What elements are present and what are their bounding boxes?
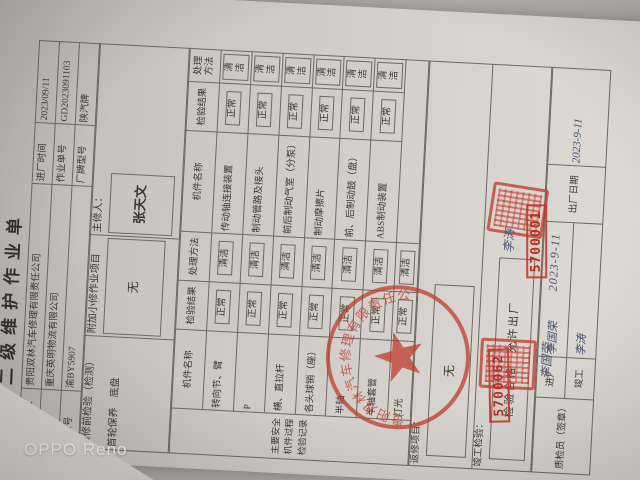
result-value: 正常	[299, 287, 332, 338]
pre-repair-cell: 维修前检验（检测） 首轮保养 底盘	[79, 335, 174, 453]
finish-signature: 李涛	[575, 334, 588, 357]
method-value: 清洁	[281, 53, 314, 88]
inspector-label: 质检员（签章）	[532, 397, 594, 475]
paper-sheet: 二级维护作业单 维修企业： 贵阳双林汽车修理有限责任公司 进厂时间 2023/0…	[0, 0, 640, 480]
col-header-result-left: 检验结果	[176, 280, 210, 331]
finish-signature-cell: 李涛	[567, 223, 603, 359]
part-name: 半轴套管	[356, 339, 391, 420]
result-value: 正常	[309, 88, 342, 139]
result-value: 正常	[279, 86, 312, 137]
camera-watermark: OPPO Reno	[24, 440, 128, 460]
handwritten-exit-date: 2023-9-11	[546, 233, 564, 292]
result-value: 正常	[371, 91, 404, 142]
method-value: 清洁	[394, 243, 420, 293]
additional-repairs-label: 附加小修作业项目	[87, 237, 104, 333]
part-name: P	[233, 332, 268, 413]
method-value: 清洁	[374, 58, 407, 93]
result-value: 正常	[207, 282, 240, 333]
maintenance-form: 二级维护作业单 维修企业： 贵阳双林汽车修理有限责任公司 进厂时间 2023/0…	[0, 38, 611, 475]
result-value: 正常	[217, 83, 250, 134]
col-header-result-right: 检验结果	[186, 81, 220, 132]
exit-date-value: 2023-9-11	[570, 118, 584, 164]
photo-of-maintenance-form: 二级维护作业单 维修企业： 贵阳双林汽车修理有限责任公司 进厂时间 2023/0…	[0, 0, 640, 480]
result-value: 正常	[361, 290, 394, 341]
method-value: 清洁	[240, 234, 273, 285]
method-value: 清洁	[250, 52, 283, 87]
col-header-method-left: 处理方法	[178, 231, 212, 282]
chief-repairer-cell: 主修人： 张天文	[90, 44, 189, 239]
method-value: 清洁	[332, 239, 365, 290]
exit-date-cell: 2023-9-11	[548, 67, 611, 167]
rework-label: 返修项目：	[411, 416, 423, 464]
method-value: 清洁	[343, 57, 376, 92]
chief-repairer-label: 主修人：	[92, 192, 105, 233]
part-name: 各头球销（座）	[295, 336, 330, 417]
method-value: 清洁	[302, 238, 335, 289]
exit-date-label: 出厂日期	[545, 164, 606, 224]
entry-inspector-number-stamp: 5700062	[488, 349, 510, 423]
method-value: 清洁	[363, 241, 396, 292]
maintenance-category: 首轮保养 底盘	[106, 339, 123, 447]
method-value: 清洁	[209, 233, 242, 284]
col-header-method-right: 处理方法	[189, 48, 222, 83]
additional-repairs-cell: 附加小修作业项目 无	[85, 234, 179, 340]
result-value: 正常	[268, 285, 301, 336]
result-value: 正常	[237, 283, 270, 334]
handwritten-finish-signature: 李涛	[500, 228, 518, 253]
completion-label: 竣工检验：	[473, 419, 485, 467]
finish-label: 竣工	[565, 358, 596, 400]
result-value: 正常	[330, 288, 363, 339]
result-value: 正常	[391, 291, 417, 341]
part-name: 转向节、臂	[202, 331, 237, 412]
pre-repair-label: 维修前检验（检测）	[81, 338, 98, 446]
method-value: 清洁	[220, 50, 253, 85]
rework-box: 无	[426, 284, 475, 458]
additional-repairs-box: 无	[102, 238, 165, 337]
part-name: 横、直拉杆	[264, 334, 299, 415]
col-header-name-left: 机件名称	[172, 329, 207, 410]
part-name: 半轴	[326, 337, 361, 418]
part-name: 灯光	[387, 340, 414, 420]
brand-label: 厂牌型号	[72, 125, 95, 187]
inspection-table: 主要安全机件过程检验记录 机件名称 检验结果 处理方法 机件名称 检验结果 处理…	[169, 48, 430, 466]
method-value: 清洁	[312, 55, 345, 90]
chief-repairer-name: 张天文	[108, 173, 175, 236]
finish-inspector-number-stamp: 5700001	[526, 205, 547, 279]
result-value: 正常	[340, 89, 373, 140]
result-value: 正常	[248, 85, 281, 136]
method-value: 清洁	[271, 236, 304, 287]
handwritten-entry-signature: 李国荣	[537, 343, 556, 380]
